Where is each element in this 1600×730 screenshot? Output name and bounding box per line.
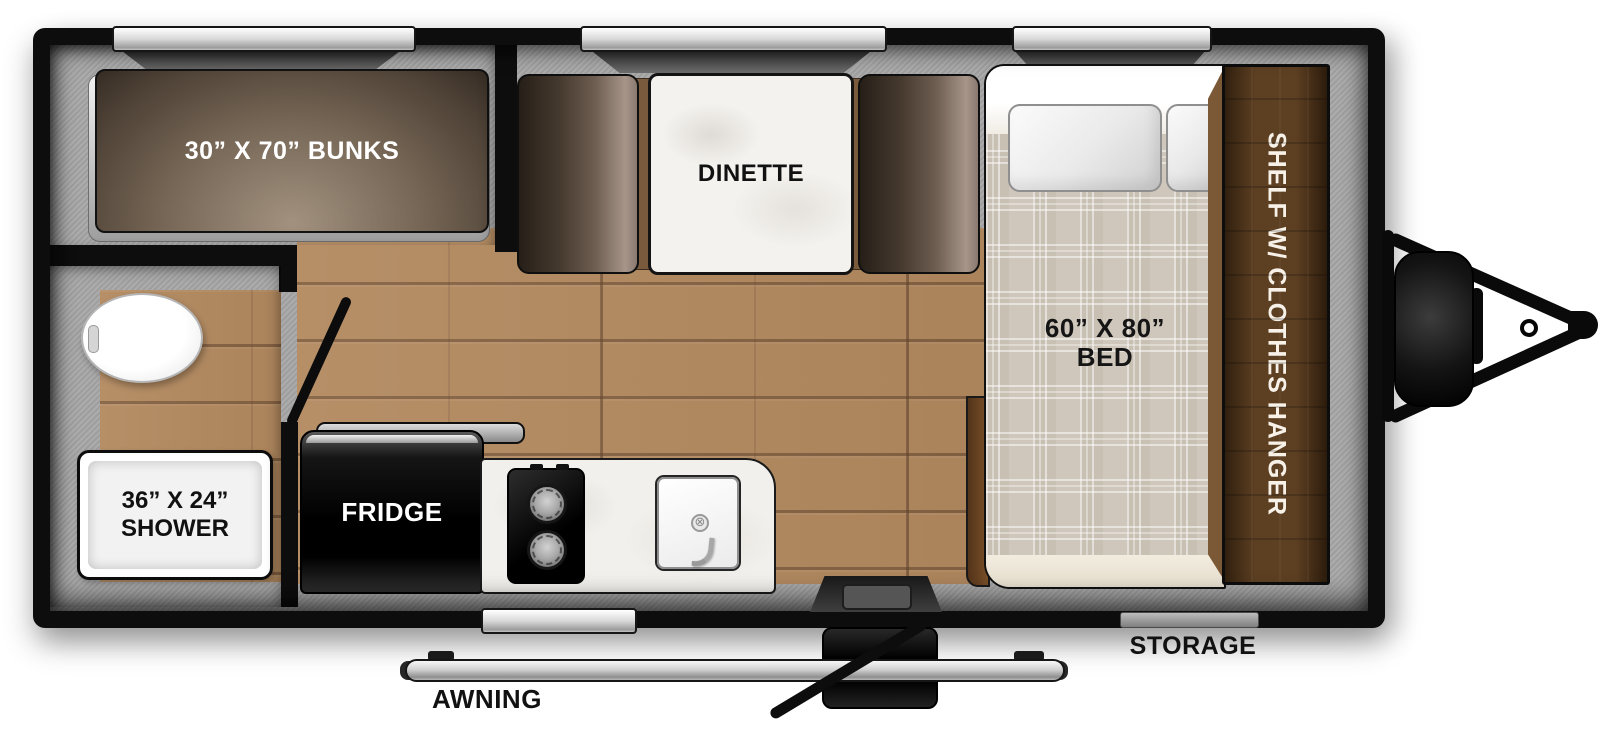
propane-tank <box>1394 251 1474 407</box>
dinette-label: DINETTE <box>698 160 804 188</box>
faucet-icon <box>691 536 714 568</box>
storage-hatch <box>1120 612 1259 628</box>
bunk-bed: 30” X 70” BUNKS <box>95 69 489 233</box>
toilet <box>81 293 203 383</box>
dinette-bench-right <box>858 74 980 274</box>
dinette-bench-left <box>517 74 639 274</box>
bunk-window <box>112 26 416 52</box>
safety-chain-ring <box>1520 319 1538 337</box>
bed-name-label: BED <box>986 343 1224 372</box>
dinette-window <box>580 26 887 52</box>
bathroom-door-jamb-top <box>279 263 297 292</box>
shower-label: 36” X 24” SHOWER <box>121 487 229 542</box>
fridge-label: FRIDGE <box>341 497 442 528</box>
dinette-table: DINETTE <box>648 73 854 275</box>
entry-platform <box>810 576 942 612</box>
bathroom-door-jamb-bottom <box>281 422 298 607</box>
bed: 60” X 80” BED <box>984 64 1226 589</box>
bed-foot-band <box>986 555 1224 587</box>
awning-rail <box>405 659 1065 682</box>
kitchen-window <box>481 608 637 634</box>
sink-drain-icon: ⊗ <box>691 514 709 532</box>
bunkroom-partition-wall <box>495 45 517 252</box>
hitch-coupler <box>1568 311 1598 339</box>
shower-pan: 36” X 24” SHOWER <box>88 461 262 569</box>
sink: ⊗ <box>657 477 739 569</box>
awning-label: AWNING <box>407 684 567 715</box>
floorplan-canvas: 30” X 70” BUNKS DINETTE 60” X 80” BED SH… <box>0 0 1600 730</box>
entry-platform-tread <box>842 584 912 610</box>
shower-size-label: 36” X 24” <box>121 487 229 515</box>
fridge: FRIDGE <box>300 430 484 594</box>
stove-knob-right <box>556 464 569 470</box>
shower-name-label: SHOWER <box>121 515 229 543</box>
bed-size-label: 60” X 80” <box>986 314 1224 343</box>
shower: 36” X 24” SHOWER <box>77 450 273 580</box>
burner-bottom <box>527 530 567 570</box>
hitch-crossmember-inner <box>1382 230 1394 422</box>
storage-label: STORAGE <box>1113 632 1273 661</box>
bed-window <box>1012 26 1212 52</box>
pillow-left <box>1008 104 1162 192</box>
stove-knob-left <box>530 464 543 470</box>
clothes-shelf: SHELF W/ CLOTHES HANGER <box>1222 64 1330 585</box>
burner-top <box>527 484 567 524</box>
bunk-label: 30” X 70” BUNKS <box>185 137 400 166</box>
shelf-texture <box>1225 67 1327 582</box>
trailer-body: 30” X 70” BUNKS DINETTE 60” X 80” BED SH… <box>33 28 1385 628</box>
bathroom-wall <box>50 245 297 266</box>
bed-label: 60” X 80” BED <box>986 314 1224 371</box>
toilet-flush-slot <box>88 325 99 353</box>
